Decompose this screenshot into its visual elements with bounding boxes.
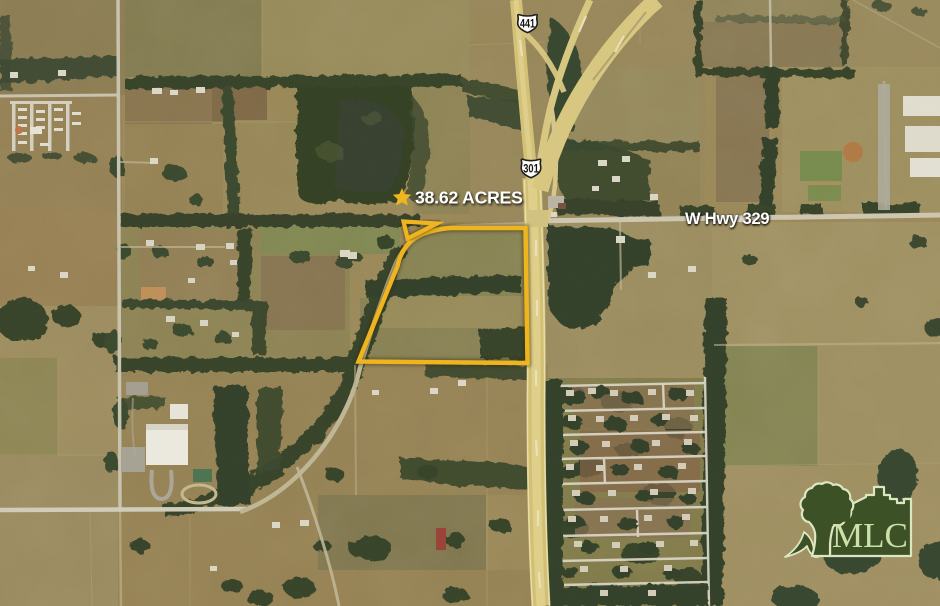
svg-text:W Hwy 329: W Hwy 329 bbox=[685, 210, 769, 228]
svg-text:38.62 ACRES: 38.62 ACRES bbox=[415, 188, 523, 208]
svg-text:301: 301 bbox=[523, 164, 539, 176]
svg-text:MLC: MLC bbox=[832, 516, 908, 555]
svg-text:441: 441 bbox=[520, 19, 535, 31]
